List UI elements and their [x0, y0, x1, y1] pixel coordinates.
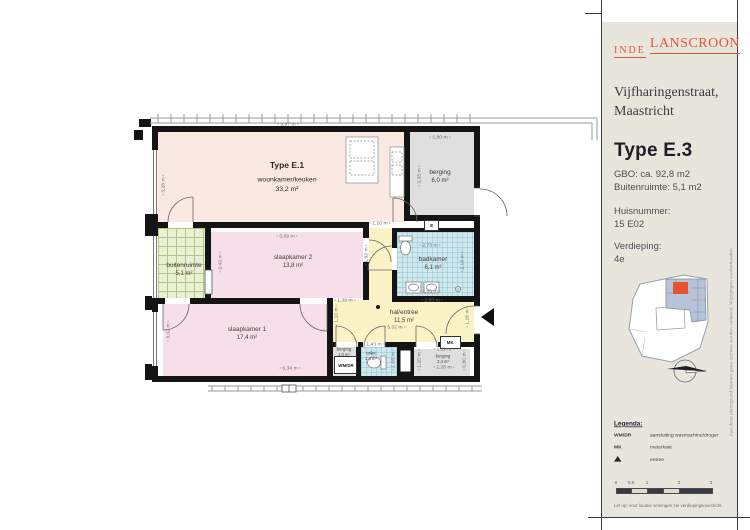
electric-label: E [430, 223, 433, 228]
dim-label: 9,87 m [277, 121, 298, 127]
living-room-label: Type E.1 woonkamer/keuken 33,2 m² [258, 160, 317, 193]
brand-name-right: LANSCROON [650, 36, 740, 54]
plan-type-label: Type E.1 [258, 160, 317, 172]
legend-key: MK [614, 444, 650, 450]
brand-logo: INDE LANSCROON [614, 36, 729, 58]
smoke-detector-dot [376, 305, 380, 309]
dim-label: 2,28 m [433, 364, 454, 370]
buitenruimte-spec: Buitenruimte: 5,1 m2 [614, 182, 729, 195]
legend-key: WM/DR [614, 432, 650, 438]
storage-top-label: berging 6,0 m² [429, 168, 450, 184]
verdieping-value: 4e [614, 254, 729, 267]
room-area: 6,0 m² [429, 176, 450, 184]
scale-tick: 1 [646, 480, 648, 485]
frame-line-horizontal-bottom [588, 517, 750, 518]
entree-arrow-icon [481, 308, 494, 326]
dim-label: 2,83 m [419, 288, 440, 294]
street-name: Vijfharingenstraat, [614, 84, 729, 103]
huisnummer-label: Huisnummer: [614, 206, 729, 219]
legend-row-entree: entree [614, 456, 732, 463]
room-area: 11,5 m² [390, 316, 418, 324]
storage-meter-label: berging 2,4 m² [436, 354, 451, 365]
info-sidebar: INDE LANSCROON Vijfharingenstraat, Maast… [602, 22, 737, 517]
huisnummer-value: 15 E02 [614, 219, 729, 232]
scale-tick: 2 [678, 480, 680, 485]
kitchen-fixtures [346, 137, 404, 197]
dim-label: 2,83 m [421, 297, 442, 303]
dim-label: 1,08 m [390, 349, 396, 370]
disclaimer-vertical-text: Aan deze plattegrond kunnen geen rechten… [728, 317, 733, 437]
room-name: berging [429, 168, 450, 176]
dim-label: 1,43 m [363, 341, 384, 347]
legend: Legenda: WM/DR aansluiting wasmachine/dr… [614, 420, 729, 467]
legend-row-mk: MK meterkast [614, 444, 732, 450]
legend-desc: meterkast [650, 444, 732, 450]
room-name: buitenruimte [166, 261, 201, 269]
scale-tick: 0 [615, 480, 617, 485]
hall-label: hal/entree 11,5 m² [390, 308, 418, 324]
dim-label: 1,11 m [434, 346, 455, 352]
dim-label: 6,34 m [279, 365, 300, 371]
page: WM/DR MK E Type E.1 woonkamer/keuken 33,… [0, 0, 750, 530]
gbo-spec: GBO: ca. 92,8 m2 [614, 169, 729, 182]
shaft-void [400, 350, 411, 372]
dim-label: 5,32 m [384, 324, 405, 330]
room-area: 6,1 m² [419, 263, 447, 271]
entree-triangle-icon [614, 456, 650, 463]
legend-desc: entree [650, 457, 732, 463]
dim-label: 2,42 m [217, 251, 223, 272]
legend-title: Legenda: [614, 420, 706, 427]
room-name: slaapkamer 1 [228, 325, 266, 333]
scale-tick: 0,5 [628, 480, 634, 485]
scale-tick: 3 [710, 480, 712, 485]
dim-label: 3,02 m [165, 320, 171, 341]
electric-box: E [424, 220, 439, 231]
scale-segment [679, 488, 713, 494]
room-name: woonkamer/keuken [258, 175, 317, 185]
legend-row-wmdr: WM/DR aansluiting wasmachine/droger [614, 432, 732, 438]
dim-label: 1,92 m [363, 244, 369, 265]
storage-small-label: berging 1,0 m² [337, 347, 352, 358]
room-area: 33,2 m² [258, 184, 317, 194]
meter-cupboard-label: MK [447, 340, 454, 345]
site-map [610, 268, 730, 396]
room-area: 5,1 m² [166, 269, 201, 277]
frame-line-vertical-right [737, 0, 738, 530]
dim-label: 5,69 m [276, 233, 297, 239]
site-map-unit-highlight [673, 282, 688, 294]
dim-label: 0,80 m [461, 349, 467, 370]
unit-type-heading: Type E.3 [614, 140, 729, 162]
dim-label: 1,16 m [464, 306, 470, 327]
unit-specs: GBO: ca. 92,8 m2 Buitenruimte: 5,1 m2 [614, 169, 729, 195]
legend-desc: aansluiting wasmachine/droger [650, 432, 732, 438]
dim-label: 1,39 m [334, 297, 355, 303]
dim-label: 3,28 m [160, 174, 166, 195]
scale-bar: 0 0,5 1 2 3 [614, 478, 729, 496]
balcony-label: buitenruimte 5,1 m² [166, 261, 201, 277]
verdieping-label: Verdieping: [614, 241, 729, 254]
room-name: slaapkamer 2 [274, 253, 312, 261]
room-area: 1,4 m² [365, 356, 377, 361]
room-area: 1,0 m² [337, 352, 352, 357]
washer-dryer-box: WM/DR [334, 356, 357, 374]
room-area: 13,8 m² [274, 261, 312, 269]
room-area: 17,4 m² [228, 333, 266, 341]
floor-plan: WM/DR MK E Type E.1 woonkamer/keuken 33,… [0, 0, 600, 530]
bathroom-label: badkamer 6,1 m² [419, 255, 447, 271]
dim-label: 2,73 m [419, 242, 440, 248]
verdieping-block: Verdieping: 4e [614, 241, 729, 267]
walls [134, 119, 480, 382]
dim-label: 1,20 m [416, 349, 422, 370]
north-compass-icon [667, 360, 706, 382]
room-name: badkamer [419, 255, 447, 263]
bedroom1-label: slaapkamer 1 17,4 m² [228, 325, 266, 341]
room-name: hal/entree [390, 308, 418, 316]
brand-name-left: INDE [614, 45, 646, 58]
location-note: Let op: voor locatie woningen zie verdie… [614, 503, 678, 508]
bedroom2-label: slaapkamer 2 13,8 m² [274, 253, 312, 269]
toilet-label: toilet 1,4 m² [365, 351, 377, 362]
dim-label: 3,33 m [416, 165, 422, 186]
project-address: Vijfharingenstraat, Maastricht [614, 84, 729, 122]
city-name: Maastricht [614, 103, 729, 122]
dim-label: 1,10 m [369, 220, 390, 226]
dim-label: 2,18 m [459, 251, 465, 272]
dim-label: 1,10 m [333, 304, 339, 325]
washer-dryer-label: WM/DR [338, 363, 353, 368]
dim-label: 1,80 m [429, 134, 450, 140]
huisnummer-block: Huisnummer: 15 E02 [614, 206, 729, 232]
